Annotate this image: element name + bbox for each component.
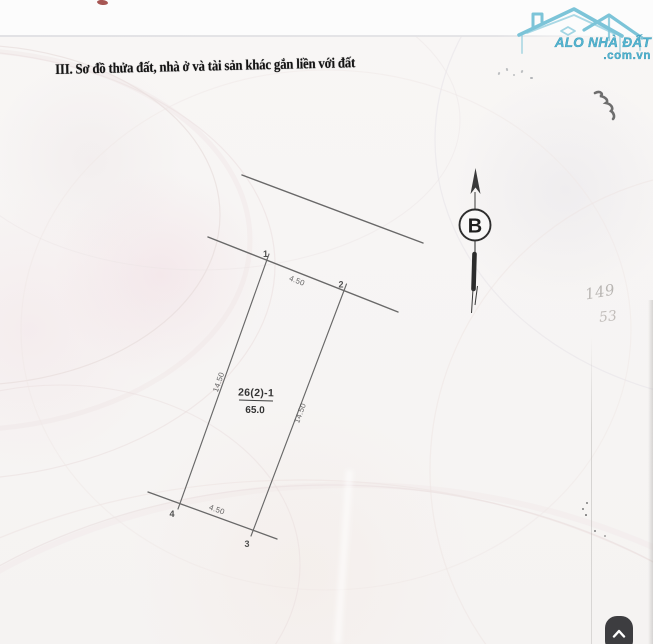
north-label: B (468, 216, 482, 238)
rear-boundary-line (148, 492, 277, 539)
handwritten-note-2: 53 (598, 308, 617, 326)
vertex-label-2: 2 (338, 280, 343, 290)
parcel-id-label: 26(2)-1 (238, 387, 274, 400)
dim-label-right: 14.50 (292, 402, 308, 425)
parcel-id-underline (239, 400, 273, 401)
vertex-label-1: 1 (263, 249, 268, 259)
scanned-certificate-page: III. Sơ đồ thửa đất, nhà ở và tài sản kh… (0, 0, 653, 644)
parcel-area-label: 65.0 (245, 405, 265, 416)
front-boundary-line (208, 237, 398, 312)
dim-label-left: 14.50 (211, 371, 226, 394)
vertex-label-3: 3 (244, 539, 249, 549)
north-arrow-icon: B (460, 168, 491, 313)
survey-diagram: 1 2 3 4 4.50 14.50 4.50 14.50 26(2)-1 65… (0, 0, 653, 644)
chevron-up-icon (612, 629, 626, 638)
north-arrow-tail (474, 254, 475, 289)
dim-label-top: 4.50 (288, 274, 307, 288)
road-line-upper (242, 175, 423, 243)
scroll-to-top-button[interactable] (605, 616, 633, 644)
vertex-label-4: 4 (169, 509, 174, 519)
north-arrowhead (471, 168, 481, 194)
